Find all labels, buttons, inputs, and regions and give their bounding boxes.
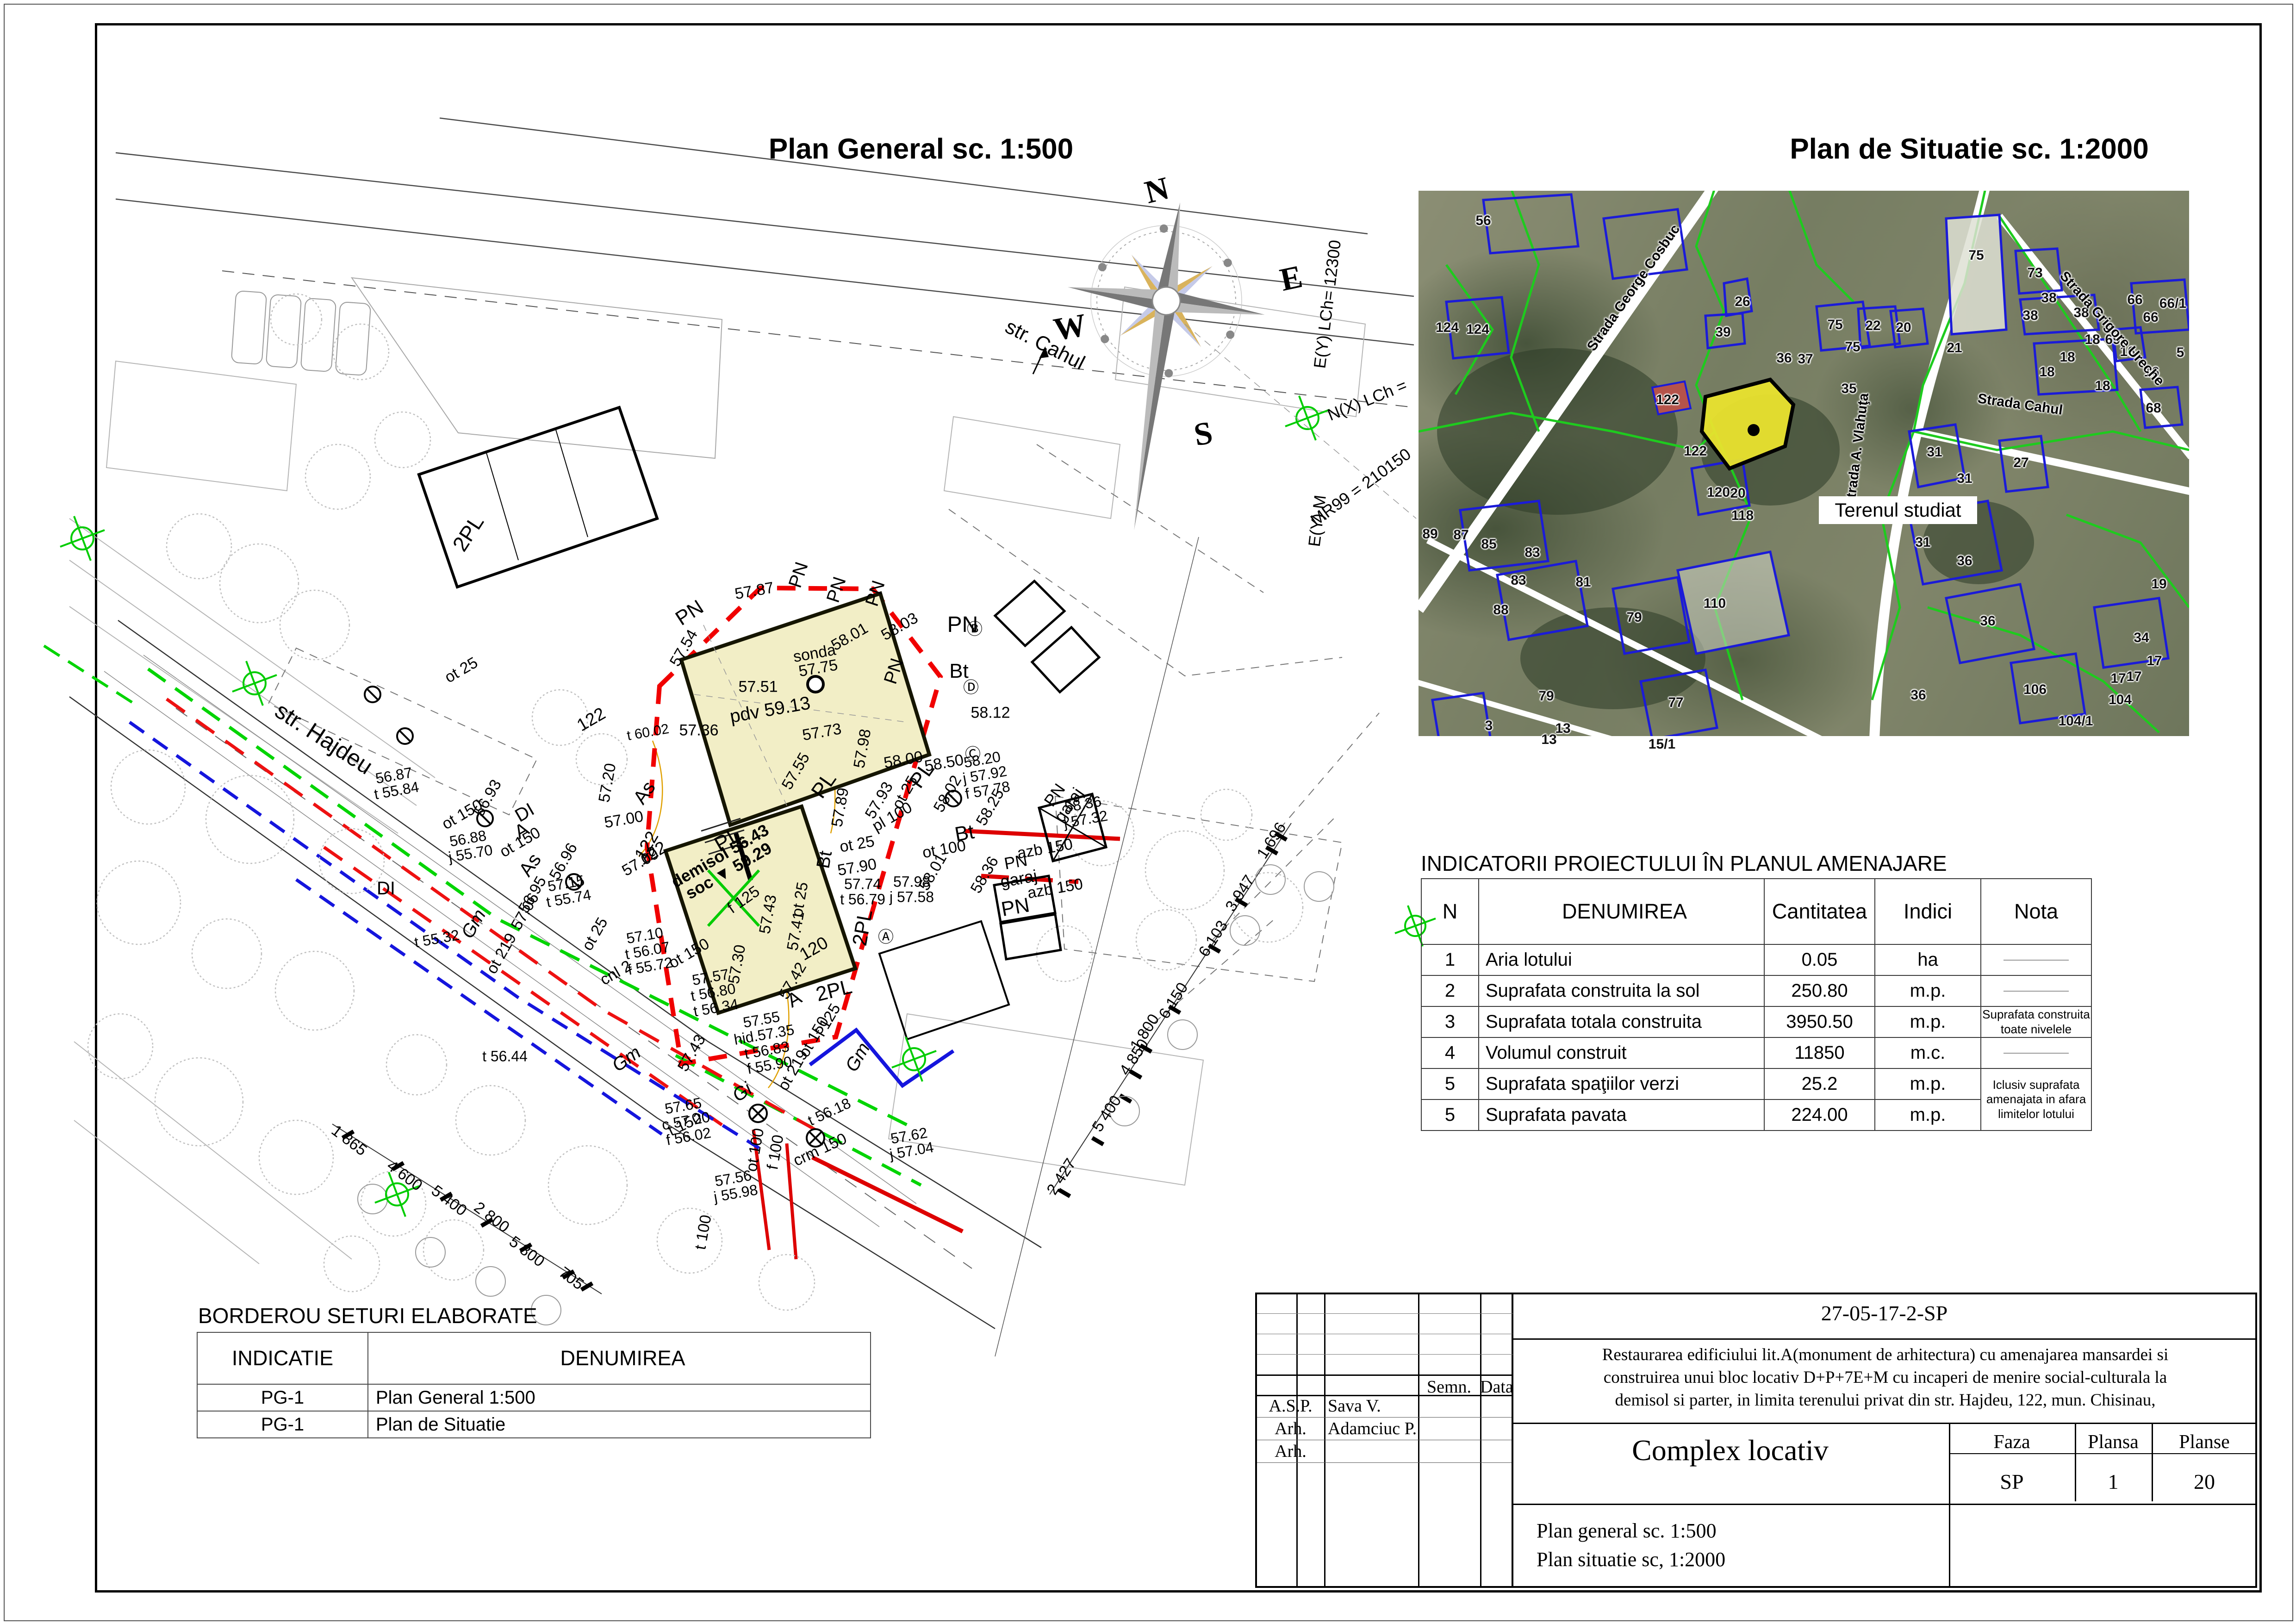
parcel-number: 18 xyxy=(2060,350,2075,365)
indicators-cell: m.p. xyxy=(1875,975,1981,1006)
plan-label: ot 25 xyxy=(839,833,876,856)
plan-label: PN xyxy=(863,578,889,609)
borderou-title: BORDEROU SETURI ELABORATE xyxy=(198,1303,537,1328)
signature-row: A.S.P.Sava V. xyxy=(1257,1395,1512,1418)
indicators-cell: m.p. xyxy=(1875,1099,1981,1131)
parcel-number: 15/1 xyxy=(1649,737,1675,752)
plan-label: 6 103 xyxy=(1196,918,1231,960)
parcel-number: 22 xyxy=(1865,318,1880,334)
parcel-number: 85 xyxy=(1481,537,1496,552)
indicators-header-denumirea: DENUMIREA xyxy=(1479,879,1764,944)
plan-label: t 100 xyxy=(692,1214,715,1251)
indicators-cell: 3 xyxy=(1421,1006,1479,1037)
parcel-number: 38 xyxy=(2022,308,2038,324)
parcel-number: 110 xyxy=(1704,596,1726,612)
plan-label: PN xyxy=(824,575,850,605)
indicators-cell: Volumul construit xyxy=(1479,1037,1764,1068)
plansa-value: 1 xyxy=(2075,1469,2152,1494)
parcel-number: 17 xyxy=(2126,669,2141,685)
plan-label: 58.36 j 57.32 xyxy=(1060,793,1109,831)
project-code: 27-05-17-2-SP xyxy=(1512,1301,2257,1325)
plan-label: 58.50 xyxy=(923,752,965,775)
sat-labels-layer: 5612412426397575752220213637357338383818… xyxy=(1419,191,2189,736)
parcel-number: 27 xyxy=(2013,455,2028,471)
plan-label: 56.87 t 55.84 xyxy=(370,764,420,803)
plan-label: 58.02 xyxy=(931,773,964,815)
parcel-number: 20 xyxy=(1730,486,1745,501)
indicators-cell: 11850 xyxy=(1764,1037,1875,1068)
plan-label: 5 400 xyxy=(1089,1093,1125,1135)
borderou-cell: Plan de Situatie xyxy=(368,1411,871,1438)
plan-sheet: { "sheet": { "title_general": "Plan Gene… xyxy=(0,0,2296,1624)
planse-value: 20 xyxy=(2152,1469,2257,1494)
plan-label: PN xyxy=(672,596,707,630)
parcel-number: 66/1 xyxy=(2159,296,2186,312)
plan-label: t 60.02 xyxy=(626,722,670,743)
terenul-studiat-label: Terenul studiat xyxy=(1819,496,1977,524)
indicators-header-nota: Nota xyxy=(1981,879,2091,944)
parcel-number: 56 xyxy=(1475,213,1491,229)
parcel-number: 34 xyxy=(2134,630,2149,646)
indicators-cell: 1 xyxy=(1421,944,1479,975)
parcel-number: 66 xyxy=(2127,292,2142,308)
indicators-title: INDICATORII PROIECTULUI ÎN PLANUL AMENAJ… xyxy=(1421,851,1947,876)
plan-label: 4 600 xyxy=(384,1157,425,1194)
plan-label: ot 25 xyxy=(442,655,480,686)
plan-label: 2PL xyxy=(849,908,877,947)
plan-label: Gm xyxy=(458,906,490,942)
signature-role: Arh. xyxy=(1257,1441,1324,1462)
indicators-cell: 250.80 xyxy=(1764,975,1875,1006)
borderou-header-denumirea: DENUMIREA xyxy=(368,1332,871,1384)
parcel-number: 87 xyxy=(1453,527,1468,543)
parcel-number: 35 xyxy=(1841,381,1856,397)
borderou-table: INDICATIE DENUMIREA PG-1Plan General 1:5… xyxy=(197,1332,871,1438)
indicators-cell: Suprafata pavata xyxy=(1479,1099,1764,1131)
plan-label: 56.88 j 55.70 xyxy=(445,827,494,865)
indicators-cell: ha xyxy=(1875,944,1981,975)
plan-label: 57.74 t 56.79 xyxy=(840,877,885,908)
faza-header: Faza xyxy=(1949,1431,2075,1453)
parcel-number: 39 xyxy=(1715,325,1730,340)
satellite-map: 5612412426397575752220213637357338383818… xyxy=(1419,191,2189,736)
indicators-cell: 25.2 xyxy=(1764,1068,1875,1099)
plan-label: 57.73 xyxy=(801,721,843,744)
indicators-cell: m.p. xyxy=(1875,1006,1981,1037)
street-name: Strada Grigore Ureche xyxy=(2056,269,2167,389)
plan-label: PN xyxy=(881,656,908,687)
plan-label: 57.30 xyxy=(726,943,749,985)
plan-label: As xyxy=(629,777,659,807)
borderou-cell: PG-1 xyxy=(197,1411,368,1438)
indicators-cell: Suprafata construita toate nivelele xyxy=(1981,1006,2091,1037)
plan-label: str. Cahul xyxy=(1002,316,1088,374)
plan-label: 5 400 xyxy=(428,1182,469,1219)
parcel-number: 88 xyxy=(1493,602,1508,618)
parcel-number: 37 xyxy=(1798,351,1813,367)
plan-label: N(X) LCh = xyxy=(1325,376,1409,424)
plan-label: ot 150 xyxy=(666,936,712,972)
plan-label: 57.98 xyxy=(851,728,874,769)
indicators-cell: 4 xyxy=(1421,1037,1479,1068)
plan-label: 2PL xyxy=(449,512,488,556)
signature-role: A.S.P. xyxy=(1257,1396,1324,1416)
plan-label: 6 150 xyxy=(1156,980,1191,1022)
parcel-number: 83 xyxy=(1524,545,1540,561)
parcel-number: 75 xyxy=(1968,248,1984,263)
signature-row: Arh.Adamciuc P. xyxy=(1257,1418,1512,1440)
indicators-cell: Aria lotului xyxy=(1479,944,1764,975)
indicators-cell xyxy=(1981,944,2091,975)
plan-label: 1 800 xyxy=(1127,1012,1163,1054)
parcel-number: 118 xyxy=(1731,508,1754,524)
street-name: Strada George Cosbuc xyxy=(1584,222,1683,354)
plan-label: t 55.32 xyxy=(413,927,460,950)
plan-label: ot 219 xyxy=(484,931,520,977)
indicators-cell: Suprafata spaţiilor verzi xyxy=(1479,1068,1764,1099)
plan-label: 57.00 xyxy=(603,808,645,831)
plan-label: ot 25 xyxy=(789,881,811,918)
plan-label: Gm xyxy=(842,1040,874,1075)
content-line: Plan situatie sc, 1:2000 xyxy=(1537,1545,1725,1574)
indicators-header-indici: Indici xyxy=(1875,879,1981,944)
parcel-number: 36 xyxy=(1980,613,1995,629)
plan-label: 1 696 xyxy=(1254,820,1289,862)
plan-label: 2 427 xyxy=(1044,1156,1079,1198)
borderou-cell: PG-1 xyxy=(197,1384,368,1411)
plan-label: str. Hajdeu xyxy=(271,698,377,779)
parcel-number: 13 xyxy=(1555,721,1570,737)
plansa-header: Plansa xyxy=(2075,1431,2152,1453)
signature-name: Sava V. xyxy=(1324,1396,1422,1416)
parcel-number: 31 xyxy=(1915,535,1930,550)
parcel-number: 124 xyxy=(1466,322,1489,337)
plan-label: E(Y) M xyxy=(1306,494,1329,548)
plan-label: f 100 xyxy=(765,1134,787,1171)
plan-label: 57.87 xyxy=(734,580,775,603)
plan-label: PN xyxy=(786,560,812,590)
parcel-number: 3 xyxy=(1485,718,1493,734)
plan-label: 57.56 j 55.98 xyxy=(710,1167,759,1205)
parcel-number: 13 xyxy=(1541,732,1556,748)
borderou-cell: Plan General 1:500 xyxy=(368,1384,871,1411)
parcel-number: 79 xyxy=(1626,610,1642,625)
plan-label: Ⓑ xyxy=(967,621,983,637)
semn-header: Semn. xyxy=(1418,1377,1480,1397)
plan-label: 57.51 xyxy=(738,679,778,695)
plan-label: 2 800 xyxy=(471,1199,512,1236)
parcel-number: 124 xyxy=(1436,320,1459,336)
plan-label: pdv 59.13 xyxy=(728,693,812,726)
plan-label: 57.54 xyxy=(667,627,701,669)
indicators-cell: Iclusiv suprafata amenajata in afara lim… xyxy=(1981,1068,2091,1131)
parcel-number: 104 xyxy=(2109,692,2132,708)
parcel-number: 106 xyxy=(2023,682,2047,698)
plan-label: Gi xyxy=(729,1079,756,1106)
plan-label: 57.06 xyxy=(508,890,542,932)
plan-label: Ⓐ xyxy=(878,929,894,945)
plan-label: DI xyxy=(377,879,395,899)
plan-label: 57.20 xyxy=(596,762,619,804)
parcel-number: 19 xyxy=(2151,576,2166,592)
signature-rows: A.S.P.Sava V.Arh.Adamciuc P.Arh. xyxy=(1257,1395,1512,1463)
indicators-cell: Suprafata totala construita xyxy=(1479,1006,1764,1037)
indicators-cell: 5 xyxy=(1421,1099,1479,1131)
plan-label: t 56.44 xyxy=(482,1049,528,1064)
plan-label: Ⓓ xyxy=(963,680,979,696)
signature-row: Arh. xyxy=(1257,1440,1512,1463)
plan-label: cnl 2 xyxy=(597,958,635,989)
parcel-number: 75 xyxy=(1845,339,1860,355)
plan-label: t 56.18 xyxy=(806,1095,853,1129)
plan-label: 2PL xyxy=(814,976,854,1005)
description-line: Restaurarea edificiului lit.A(monument d… xyxy=(1516,1343,2254,1366)
plan-label: 1 865 xyxy=(328,1122,369,1159)
data-header: Data xyxy=(1480,1377,1512,1397)
plan-label: 57.62 j 57.04 xyxy=(886,1124,935,1162)
indicators-cell: 224.00 xyxy=(1764,1099,1875,1131)
parcel-number: 31 xyxy=(1957,471,1972,487)
plan-label: 57.98 j 57.58 xyxy=(890,874,934,906)
parcel-number: 122 xyxy=(1656,392,1679,408)
parcel-number: 77 xyxy=(1668,695,1683,711)
indicators-cell: 2 xyxy=(1421,975,1479,1006)
indicators-header-cantitatea: Cantitatea xyxy=(1764,879,1875,944)
parcel-number: 36 xyxy=(1957,553,1972,569)
parcel-number: 73 xyxy=(2027,265,2042,281)
plan-label: 57.36 xyxy=(679,722,718,738)
parcel-number: 5 xyxy=(2177,345,2184,361)
plan-label: 57.15 t 55.74 xyxy=(542,872,592,911)
plan-label: ot 25 xyxy=(579,915,611,953)
parcel-number: 104/1 xyxy=(2058,713,2093,729)
parcel-number: 21 xyxy=(1947,340,1962,356)
indicators-table: N DENUMIREA Cantitatea Indici Nota 1Aria… xyxy=(1421,878,2092,1131)
indicators-cell: m.p. xyxy=(1875,1068,1981,1099)
parcel-number: 18 xyxy=(2084,332,2100,348)
planse-header: Planse xyxy=(2152,1431,2257,1453)
content-line: Plan general sc. 1:500 xyxy=(1537,1517,1725,1545)
project-description: Restaurarea edificiului lit.A(monument d… xyxy=(1516,1343,2254,1412)
parcel-number: 17 xyxy=(2110,671,2126,687)
plan-label: crm 150 xyxy=(791,1131,849,1169)
sheet-content-list: Plan general sc. 1:500Plan situatie sc, … xyxy=(1537,1517,1725,1574)
plan-label: Bt xyxy=(814,849,836,870)
indicators-cell: Suprafata construita la sol xyxy=(1479,975,1764,1006)
project-name: Complex locativ xyxy=(1512,1433,1949,1468)
title-block: Semn. Data A.S.P.Sava V.Arh.Adamciuc P.A… xyxy=(1255,1293,2257,1588)
indicators-cell: m.c. xyxy=(1875,1037,1981,1068)
indicators-cell xyxy=(1981,975,2091,1006)
parcel-number: 26 xyxy=(1735,294,1750,310)
plan-label: As xyxy=(515,849,545,880)
street-name: Strada A. Vlahuţa xyxy=(1842,392,1872,508)
parcel-number: 20 xyxy=(1896,320,1911,336)
description-line: construirea unui bloc locativ D+P+7E+M c… xyxy=(1516,1366,2254,1389)
plan-label: Gm xyxy=(609,1043,645,1075)
parcel-number: 120 xyxy=(1707,485,1730,500)
parcel-number: 31 xyxy=(1927,444,1942,460)
plan-label: E(Y) LCh= 12300 xyxy=(1311,239,1344,369)
parcel-number: 38 xyxy=(2041,290,2056,306)
parcel-number: 66 xyxy=(2143,310,2158,325)
parcel-number: 79 xyxy=(1538,688,1554,704)
signature-role: Arh. xyxy=(1257,1418,1324,1439)
parcel-number: 18 xyxy=(2039,364,2054,380)
street-name: Strada Cahul xyxy=(1977,391,2064,418)
plan-label: 122 xyxy=(574,705,609,735)
plan-label: 58.03 xyxy=(878,610,921,643)
faza-value: SP xyxy=(1949,1469,2075,1494)
parcel-number: 68 xyxy=(2146,400,2161,416)
parcel-number: 17 xyxy=(2147,653,2162,669)
parcel-number: 36 xyxy=(1776,350,1792,366)
plan-label: 5 800 xyxy=(506,1233,547,1270)
indicators-header-n: N xyxy=(1421,879,1479,944)
indicators-cell: 5 xyxy=(1421,1068,1479,1099)
parcel-number: 36 xyxy=(1910,687,1926,703)
plan-label: 57.43 xyxy=(757,893,780,935)
signature-name: Adamciuc P. xyxy=(1324,1418,1422,1439)
plan-label: 705 xyxy=(556,1264,587,1293)
parcel-number: 89 xyxy=(1422,526,1437,542)
parcel-number: 75 xyxy=(1827,317,1842,333)
indicators-cell: 0.05 xyxy=(1764,944,1875,975)
parcel-number: 81 xyxy=(1575,575,1591,590)
plan-label: PN xyxy=(1000,894,1031,920)
plan-label: 58.12 xyxy=(971,705,1010,721)
plan-label: 3 947 xyxy=(1223,873,1258,915)
plan-label: 57.43 xyxy=(675,1032,709,1074)
parcel-number: 83 xyxy=(1511,573,1526,588)
borderou-header-indicatie: INDICATIE xyxy=(197,1332,368,1384)
parcel-number: 122 xyxy=(1684,443,1707,459)
plan-label: f 125 xyxy=(725,883,763,917)
indicators-cell: 3950.50 xyxy=(1764,1006,1875,1037)
indicators-cell xyxy=(1981,1037,2091,1068)
parcel-number: 18 xyxy=(2095,378,2110,394)
description-line: demisol si parter, in limita terenului p… xyxy=(1516,1389,2254,1412)
